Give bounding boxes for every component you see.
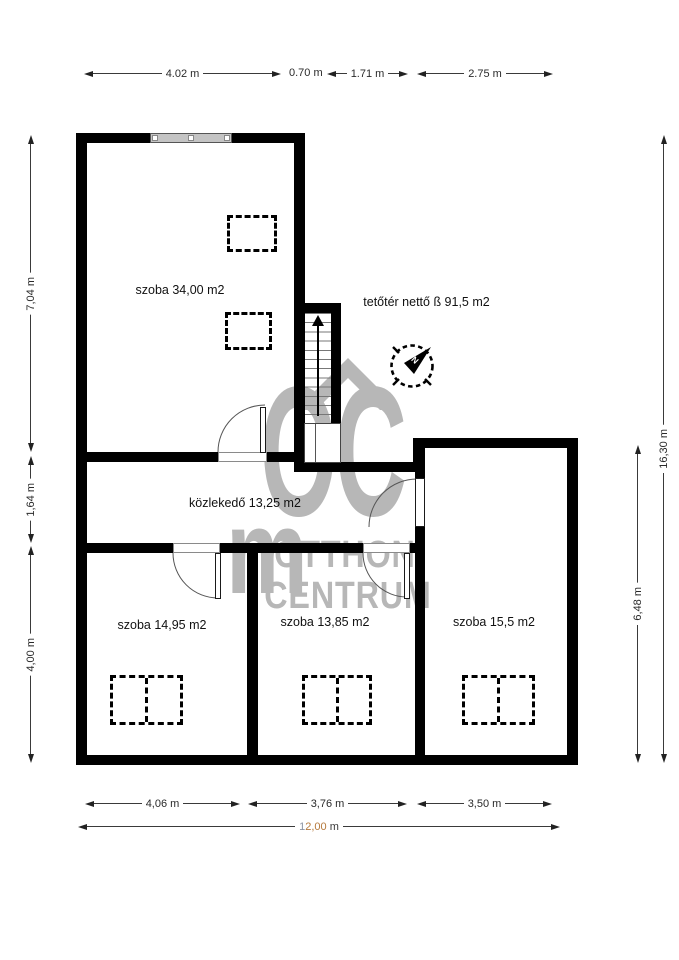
door-threshold-room-bm: [363, 543, 410, 553]
dim-left-2: 1,64 m: [24, 456, 37, 543]
wall-right-room-left-lower: [415, 527, 425, 765]
floorplan-canvas: OC OTTHON CENTRUM m: [0, 0, 679, 960]
wall-top-room-right: [294, 133, 305, 463]
dim-bottom-total: 12,00 m: [78, 820, 560, 833]
dim-right-inner: 6,48 m: [631, 445, 644, 763]
dim-bottom-1: 4,06 m: [85, 797, 240, 810]
room-label-top: szoba 34,00 m2: [80, 283, 280, 297]
skylight-room-bm: [302, 675, 372, 725]
door-leaf-room-bl: [215, 553, 221, 599]
door-leaf-top-room: [260, 407, 266, 453]
wall-hall-top-mid: [267, 452, 305, 462]
room-label-bottom-middle: szoba 13,85 m2: [245, 615, 405, 629]
dim-bottom-3: 3,50 m: [417, 797, 552, 810]
wall-right-room-top: [413, 438, 578, 448]
skylight-room-bl: [110, 675, 183, 725]
door-leaf-right-room: [415, 478, 425, 527]
dim-bottom-2: 3,76 m: [248, 797, 407, 810]
stair-up-arrowhead: [312, 315, 324, 326]
wall-stair-right: [331, 303, 341, 424]
skylight-room-br: [462, 675, 535, 725]
stair-up-arrow: [317, 324, 319, 416]
dim-top-4: 2.75 m: [417, 67, 553, 80]
window-top: [150, 133, 232, 143]
wall-outer-bottom: [76, 755, 578, 765]
door-leaf-room-bm: [404, 553, 410, 599]
room-label-bottom-right: szoba 15,5 m2: [414, 615, 574, 629]
door-threshold-room-bl: [173, 543, 220, 553]
room-label-attic: tetőtér nettő ß 91,5 m2: [344, 295, 509, 309]
wall-between-bottom-rooms: [247, 543, 258, 765]
dim-left-1: 7,04 m: [24, 135, 37, 452]
wall-right-room-left-upper: [415, 448, 425, 478]
dim-top-1: 4.02 m: [84, 67, 281, 80]
dim-top-2: 0.70 m: [289, 67, 323, 79]
stair-landing: [304, 423, 341, 463]
dim-left-3: 4,00 m: [24, 546, 37, 763]
skylight-top-room-2: [225, 312, 272, 350]
skylight-top-room-1: [227, 215, 277, 252]
room-label-hall: közlekedő 13,25 m2: [155, 496, 335, 510]
dim-top-3: 1.71 m: [327, 67, 408, 80]
wall-hall-bottom-2: [220, 543, 363, 553]
wall-outer-left: [76, 133, 87, 765]
wall-hall-bottom-1: [76, 543, 173, 553]
door-threshold-top-room: [218, 452, 267, 462]
wall-outer-right: [567, 438, 578, 765]
dim-right-outer: 16,30 m: [657, 135, 670, 763]
wall-hall-top-left: [76, 452, 218, 462]
room-label-bottom-left: szoba 14,95 m2: [82, 618, 242, 632]
wall-hall-top-right: [294, 462, 423, 472]
compass-icon: N: [386, 340, 438, 392]
